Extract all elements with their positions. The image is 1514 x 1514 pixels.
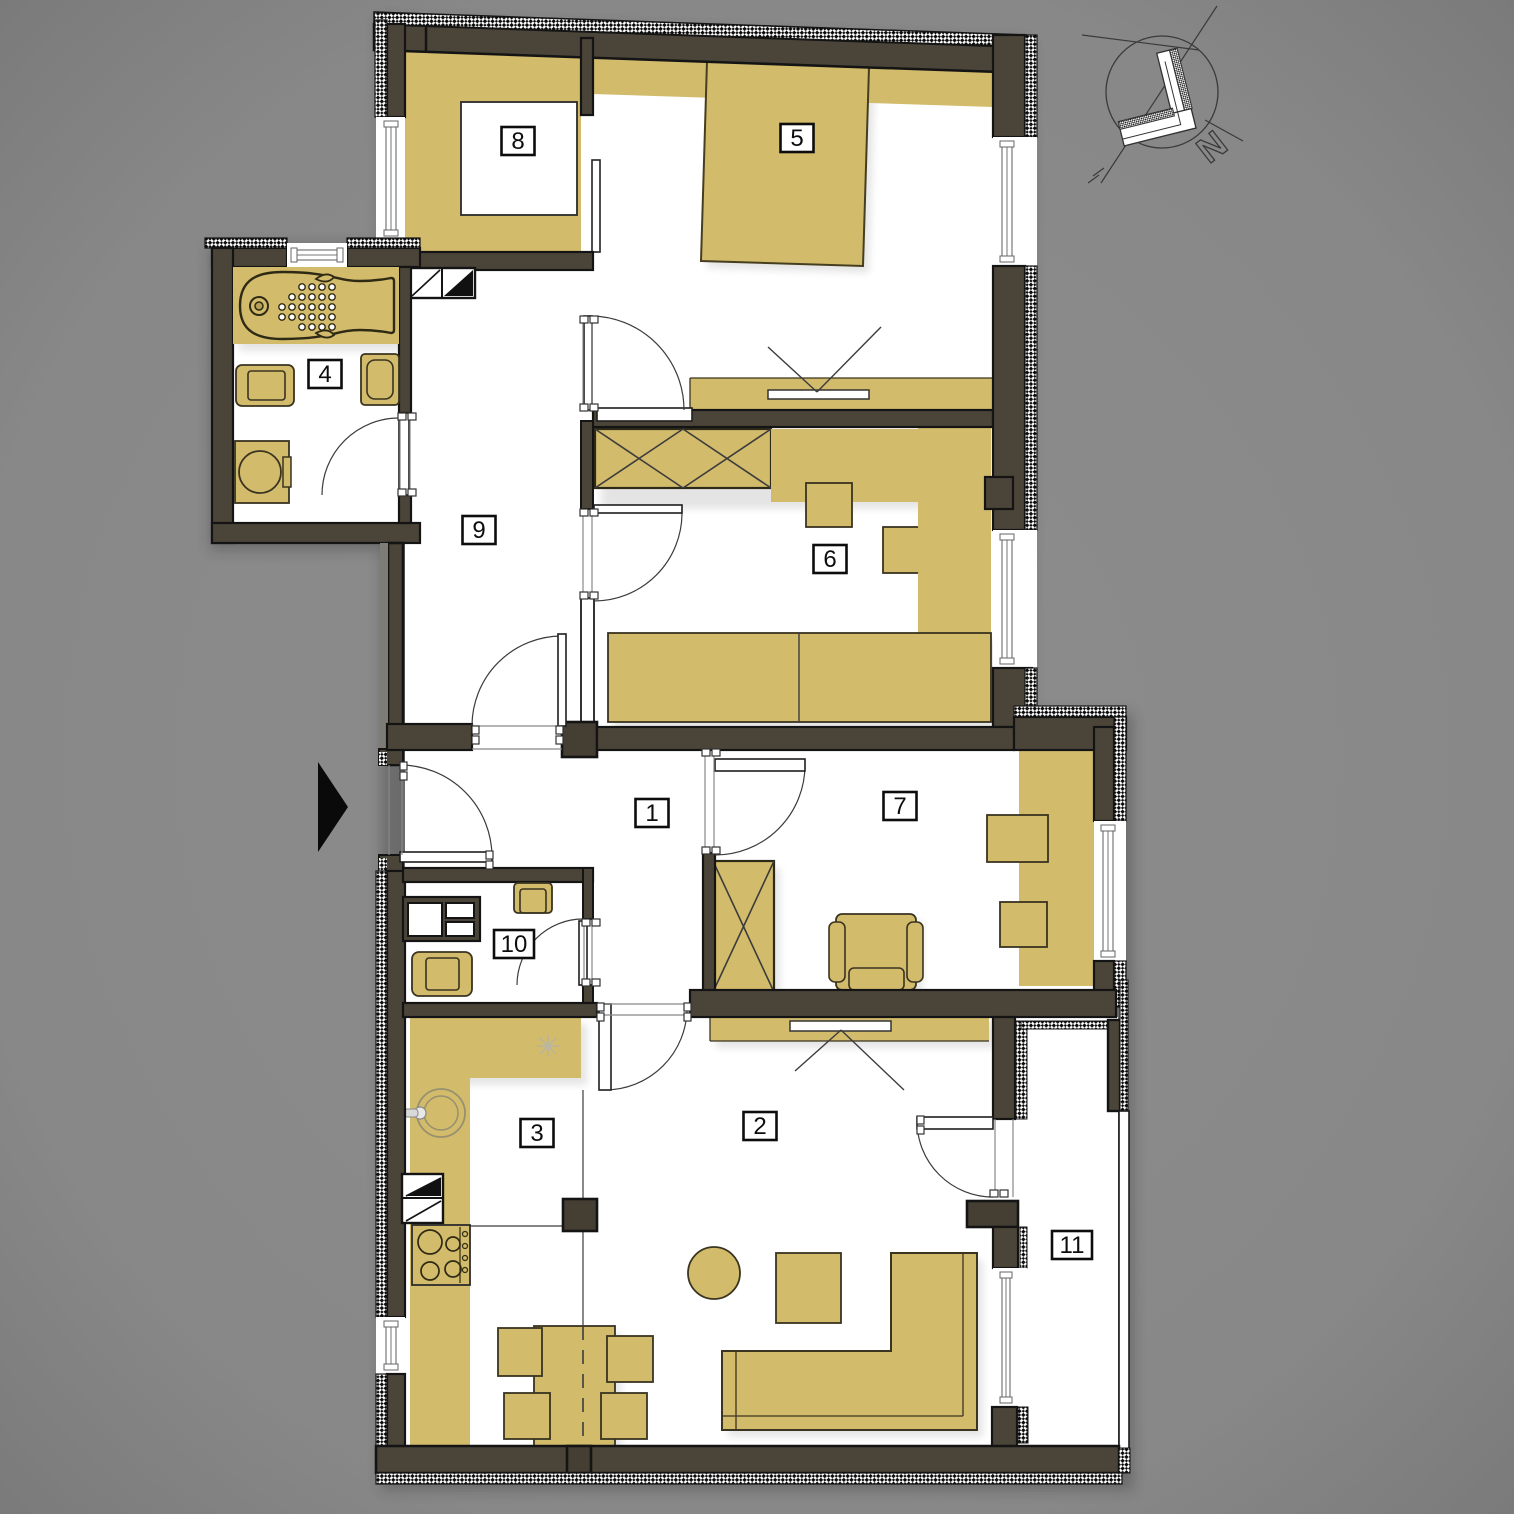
svg-text:9: 9 bbox=[472, 517, 485, 544]
svg-text:2: 2 bbox=[753, 1113, 766, 1140]
svg-text:11: 11 bbox=[1060, 1232, 1085, 1259]
svg-text:4: 4 bbox=[318, 361, 331, 388]
svg-text:6: 6 bbox=[823, 546, 836, 573]
svg-text:8: 8 bbox=[511, 128, 524, 155]
svg-text:7: 7 bbox=[893, 793, 906, 820]
svg-text:3: 3 bbox=[530, 1120, 543, 1147]
svg-text:5: 5 bbox=[790, 125, 803, 152]
svg-text:1: 1 bbox=[645, 800, 658, 827]
svg-text:10: 10 bbox=[501, 931, 528, 958]
